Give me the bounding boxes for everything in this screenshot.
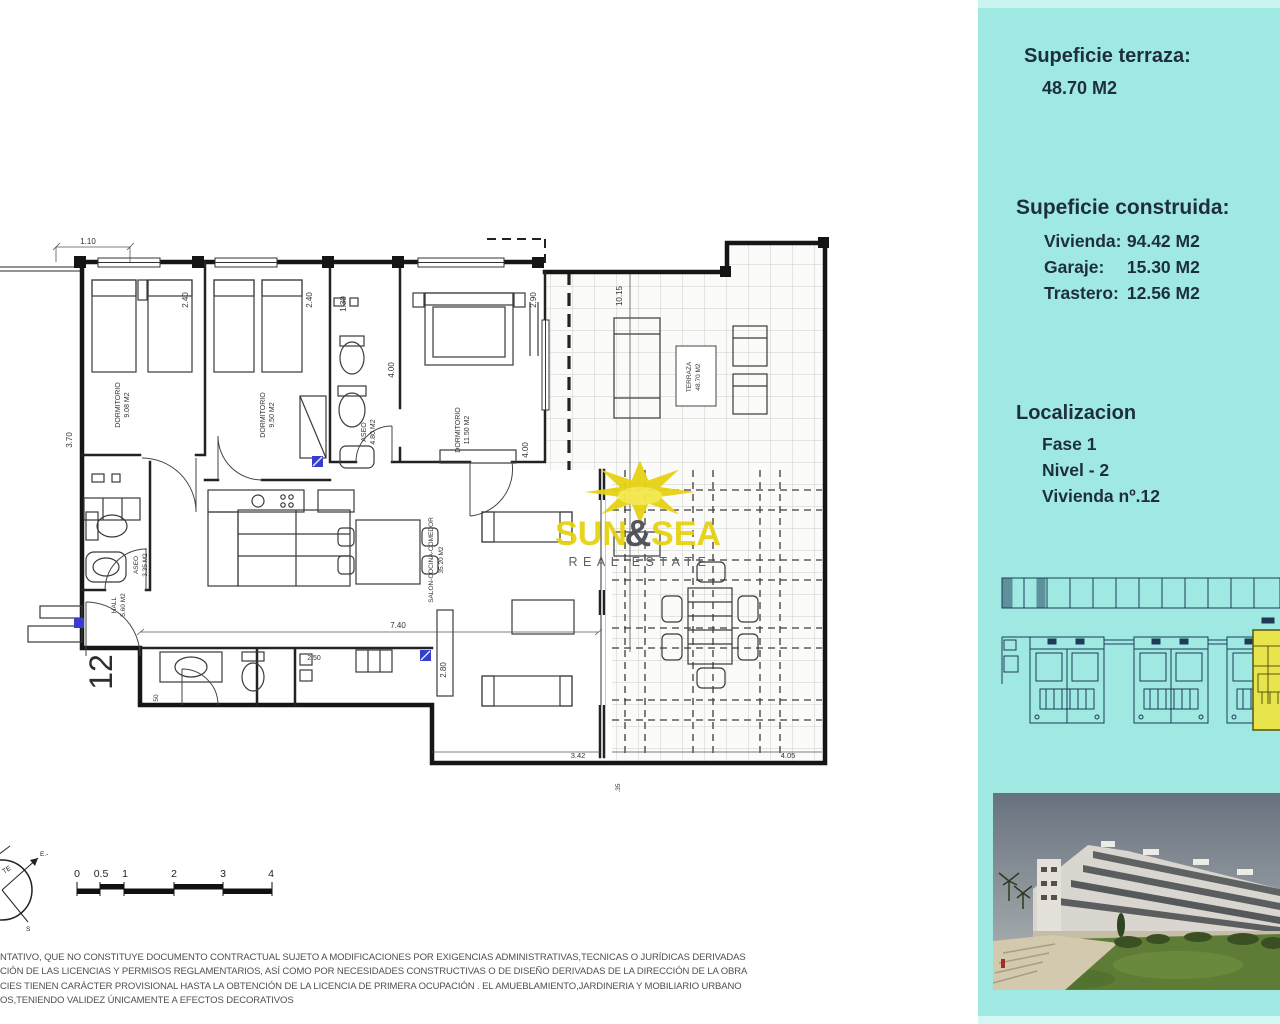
dim-label: .35 xyxy=(615,783,622,792)
compass-label: TE xyxy=(1,865,13,876)
party-wall-lines xyxy=(0,267,82,271)
entry-steps xyxy=(28,606,82,642)
room-label: DORMITORIO xyxy=(115,382,122,428)
washbasin-icon xyxy=(86,552,126,582)
row-value: 15.30 M2 xyxy=(1127,257,1200,277)
localizacion-row: Vivienda nº.12 xyxy=(1042,483,1160,509)
terraza-heading: Supeficie terraza: xyxy=(1024,45,1191,68)
site-unit-highlighted xyxy=(1253,630,1280,730)
disclaimer-line: NTATIVO, QUE NO CONSTITUYE DOCUMENTO CON… xyxy=(0,951,660,965)
site-mark xyxy=(1262,618,1274,623)
bidet-icon xyxy=(340,336,364,374)
bed-icon xyxy=(92,280,192,372)
dim-label: 50 xyxy=(153,694,160,702)
dim-label: 2.40 xyxy=(305,292,314,308)
dim-label: 4.05 xyxy=(781,751,796,760)
row-value: 12.56 M2 xyxy=(1127,283,1200,303)
logo-subtitle: REAL ESTATE xyxy=(569,555,712,569)
dim-label: 4.00 xyxy=(387,362,396,378)
development-photo xyxy=(993,793,1280,990)
room-area: 35.20 M2 xyxy=(438,546,445,573)
dim-label: 2.90 xyxy=(529,292,538,308)
row-label: Garaje: xyxy=(1044,254,1122,280)
unit-number: 12 xyxy=(83,654,119,690)
room-area: 11.50 M2 xyxy=(464,416,471,445)
logo-word-sun: SUN xyxy=(555,515,627,553)
room-area: 5.60 M2 xyxy=(120,593,127,617)
disclaimer-line: CIÓN DE LAS LICENCIAS Y PERMISOS REGLAME… xyxy=(0,965,660,979)
room-area: 48.70 M2 xyxy=(695,363,702,390)
window-icons xyxy=(98,258,605,705)
dining-table-icon xyxy=(338,520,438,584)
dim-label: 2.50 xyxy=(307,655,321,662)
compass-label: S xyxy=(26,926,31,933)
compass-label: E.- xyxy=(40,851,48,858)
room-area: 9.50 M2 xyxy=(269,402,276,427)
room-area: 4.80 M2 xyxy=(370,419,377,444)
lower-bath-icons xyxy=(160,650,392,691)
logo-ampersand: & xyxy=(625,513,652,554)
room-label: ASEO xyxy=(361,422,368,442)
scale-label: 1 xyxy=(122,868,128,880)
info-panel: Supeficie terraza: 48.70 M2 Supeficie co… xyxy=(978,0,1280,1024)
panel-top-strip xyxy=(978,0,1280,8)
room-label: DORMITORIO xyxy=(455,407,462,453)
bed-icon xyxy=(214,280,302,372)
double-bed-icon xyxy=(413,293,525,365)
row-label: Trastero: xyxy=(1044,280,1122,306)
room-label: TERRAZA xyxy=(686,361,693,392)
photo-figure xyxy=(1001,959,1005,968)
disclaimer-line: CIES TIENEN CARÁCTER PROVISIONAL HASTA L… xyxy=(0,980,660,994)
washbasin-icon xyxy=(340,446,374,468)
compass-icon: TE E.- S xyxy=(0,846,48,933)
dim-label: 10.15 xyxy=(615,285,624,306)
tv-unit-icon xyxy=(437,610,453,696)
room-area: 9.08 M2 xyxy=(124,392,131,417)
construida-row: Garaje: 15.30 M2 xyxy=(1044,254,1200,280)
coffee-table-icon xyxy=(512,600,574,634)
scale-label: 3 xyxy=(220,868,226,880)
scale-bar: 0 0.5 1 2 3 4 xyxy=(74,868,274,896)
site-plan xyxy=(990,574,1280,746)
row-label: Vivienda: xyxy=(1044,228,1122,254)
dim-label: 4.00 xyxy=(521,442,530,458)
construida-heading: Supeficie construida: xyxy=(1016,196,1230,220)
row-value: 94.42 M2 xyxy=(1127,231,1200,251)
localizacion-rows: Fase 1 Nivel - 2 Vivienda nº.12 xyxy=(1042,431,1160,509)
room-label: HALL xyxy=(111,596,118,613)
dim-label: 7.40 xyxy=(390,621,406,630)
toilet-icon xyxy=(338,386,366,427)
dim-label: 2.80 xyxy=(439,662,448,678)
floor-plan: 1.10 3.70 2.40 2.40 1.30 4.00 2.90 10.15… xyxy=(0,0,978,1024)
room-label: SALON-COCINA-COMEDOR xyxy=(428,517,435,603)
service-markers xyxy=(74,456,431,661)
dim-label: 3.70 xyxy=(65,432,74,448)
scale-label: 0 xyxy=(74,868,80,880)
localizacion-heading: Localizacion xyxy=(1016,402,1136,425)
site-unit xyxy=(1134,637,1208,723)
site-unit xyxy=(1030,637,1104,723)
construida-row: Trastero: 12.56 M2 xyxy=(1044,280,1200,306)
toilet-icon xyxy=(86,512,127,540)
scale-label: 0.5 xyxy=(94,868,109,880)
disclaimer-line: OS,TENIENDO VALIDEZ ÚNICAMENTE A EFECTOS… xyxy=(0,994,660,1008)
dim-label: 1.10 xyxy=(80,237,96,246)
room-label: DORMITORIO xyxy=(260,392,267,438)
dim-label: 3.42 xyxy=(571,751,586,760)
disclaimer-text: NTATIVO, QUE NO CONSTITUYE DOCUMENTO CON… xyxy=(0,951,660,1009)
localizacion-row: Fase 1 xyxy=(1042,431,1160,457)
construida-row: Vivienda: 94.42 M2 xyxy=(1044,228,1200,254)
dim-label: 2.40 xyxy=(181,292,190,308)
terraza-value: 48.70 M2 xyxy=(1042,78,1117,99)
room-label: ASEO xyxy=(133,556,140,574)
terrace-tiles xyxy=(545,243,825,763)
room-area: 3.35 M2 xyxy=(142,553,149,577)
dim-label: 1.30 xyxy=(339,296,348,312)
kitchen-counter-icon xyxy=(208,490,354,586)
scale-label: 2 xyxy=(171,868,177,880)
closet-icon xyxy=(84,498,140,520)
localizacion-row: Nivel - 2 xyxy=(1042,457,1160,483)
construida-rows: Vivienda: 94.42 M2 Garaje: 15.30 M2 Tras… xyxy=(1044,228,1200,306)
panel-bottom-strip xyxy=(978,1016,1280,1024)
scale-label: 4 xyxy=(268,868,274,880)
logo-word-sea: SEA xyxy=(651,515,721,553)
